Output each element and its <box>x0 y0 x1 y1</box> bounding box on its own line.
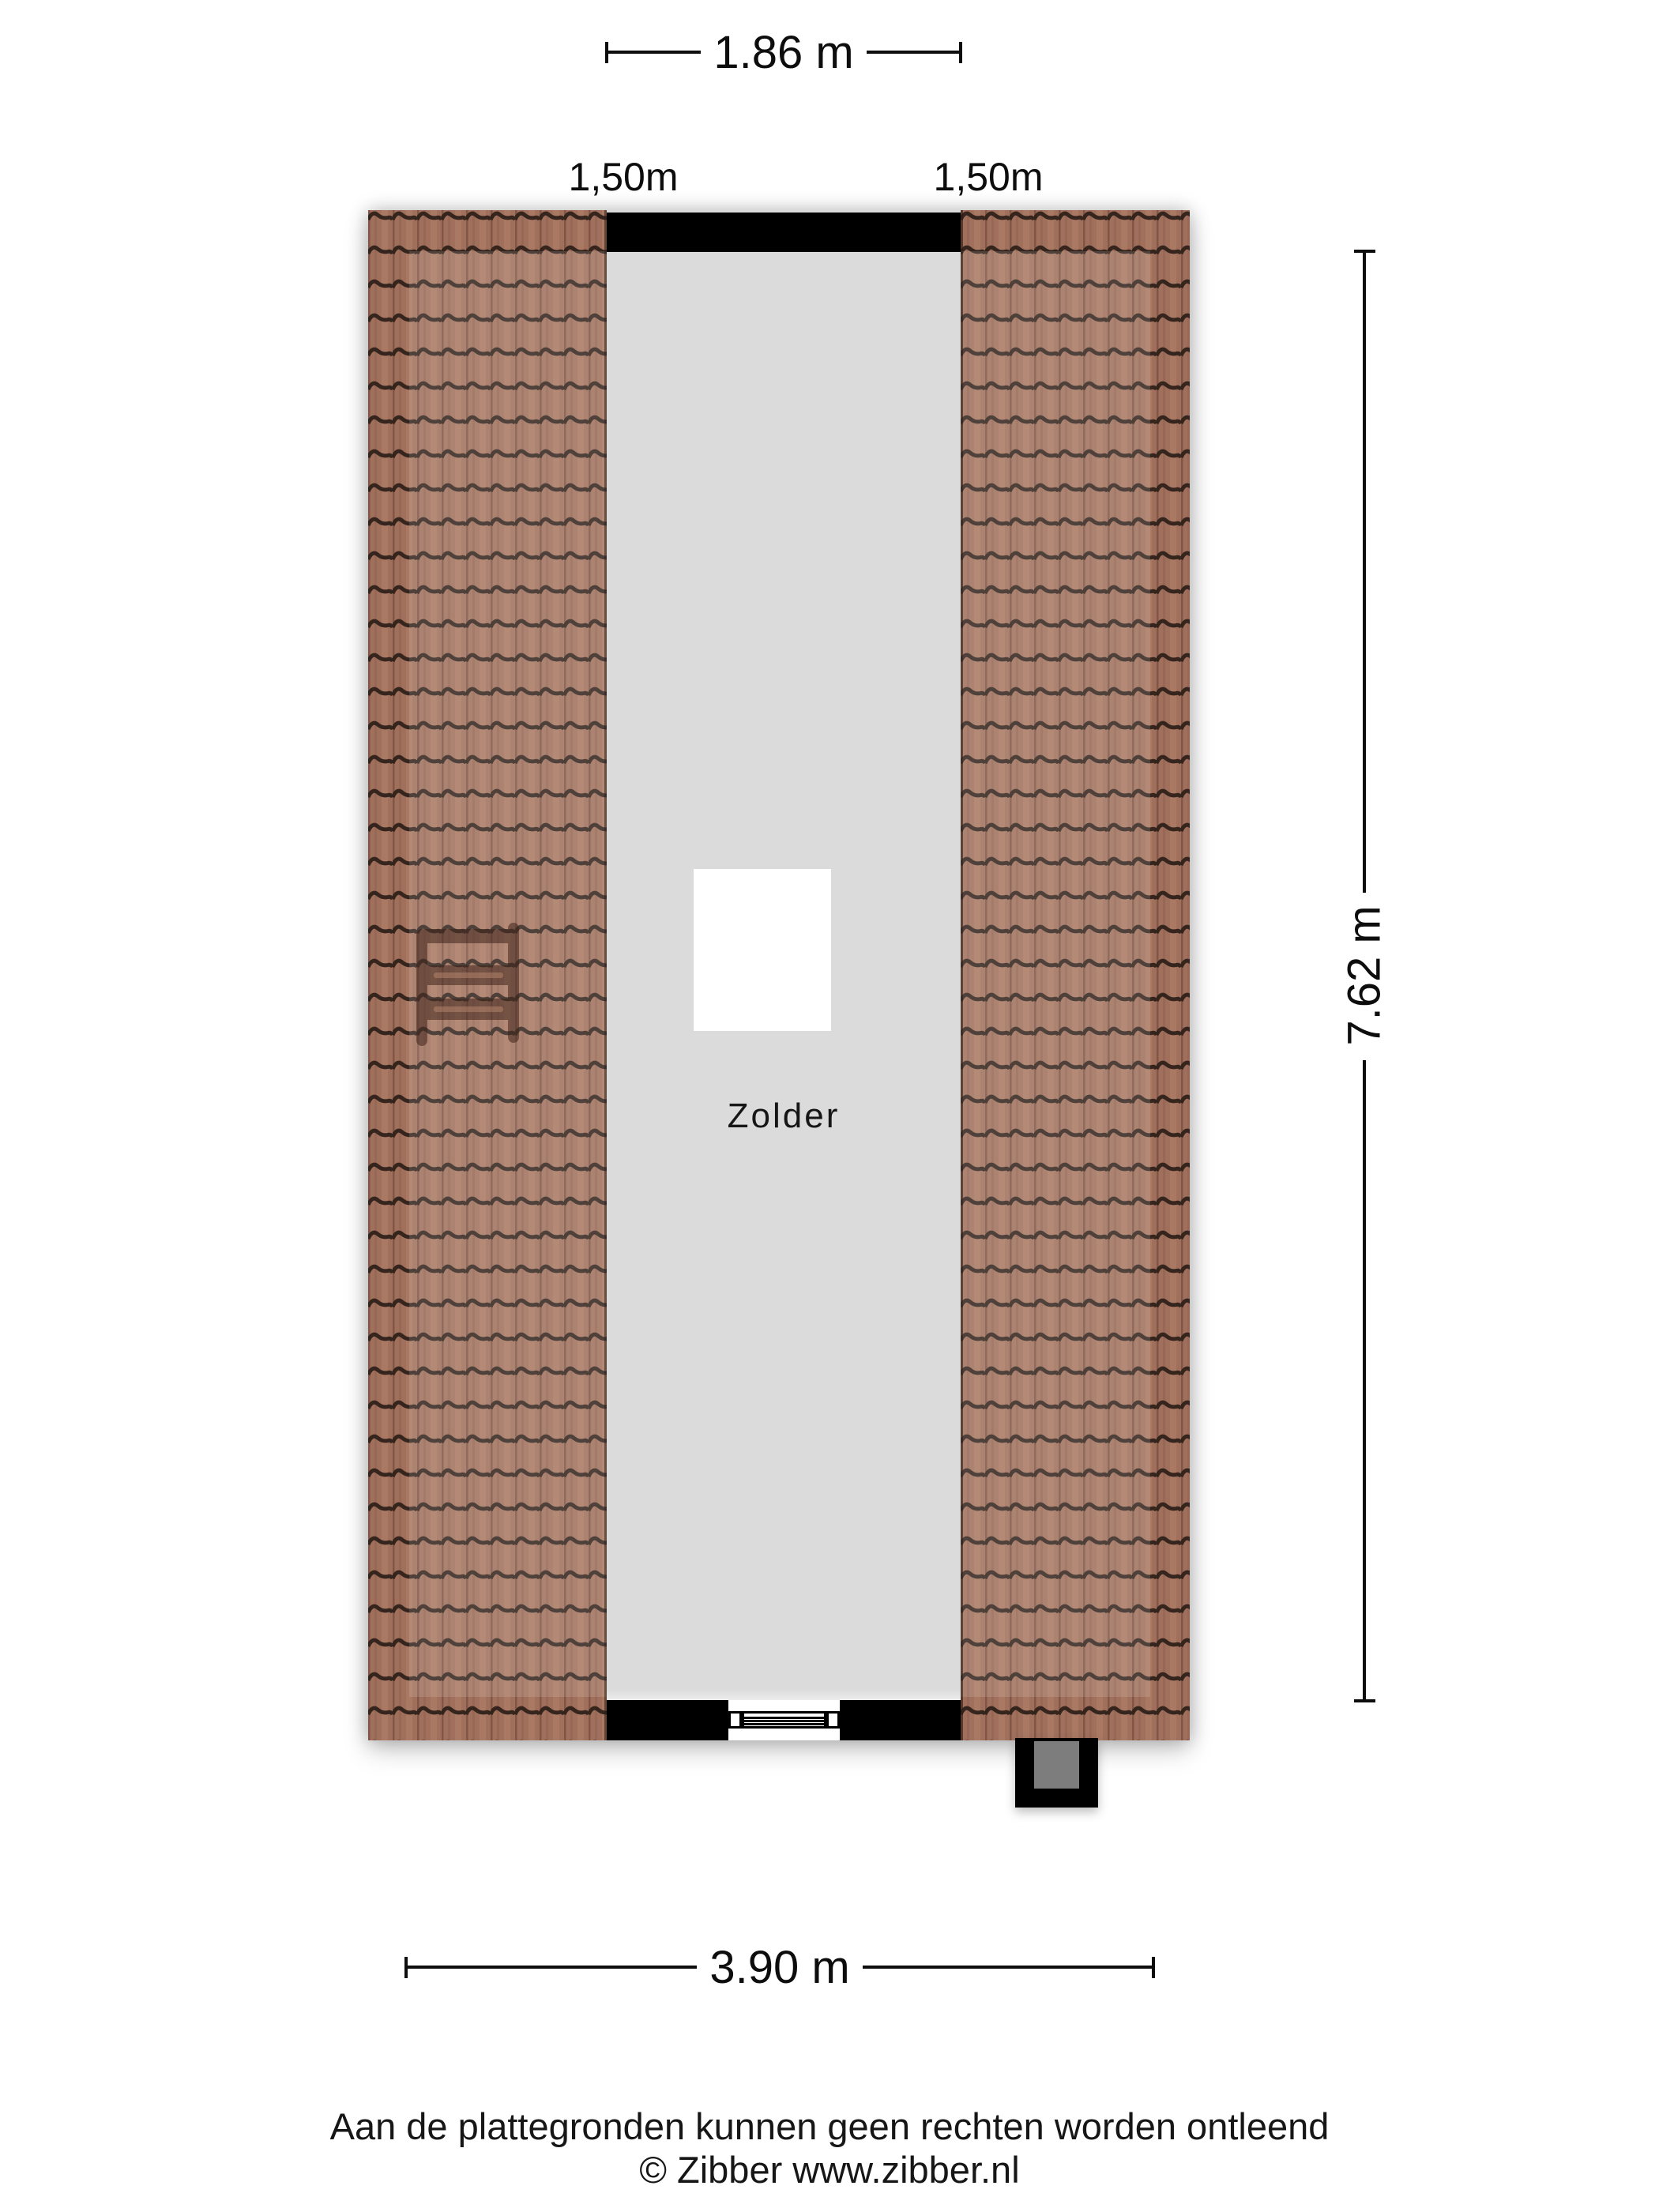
skylight <box>694 869 831 1031</box>
bottom-window <box>728 1700 840 1740</box>
room-label: Zolder <box>607 1097 961 1136</box>
glazing-line <box>744 1717 824 1719</box>
dimension-line <box>408 1966 697 1969</box>
dimension-bottom-label: 3.90 m <box>697 1941 862 1994</box>
window-frame-end <box>826 1711 840 1729</box>
dimension-line <box>608 51 701 54</box>
dimension-tick <box>959 42 962 63</box>
glazing-line <box>744 1720 824 1722</box>
dimension-line <box>1363 251 1366 893</box>
roof-width-label-left: 1,50m <box>569 153 679 201</box>
floor-plan: Zolder <box>368 210 1190 1740</box>
dimension-right-label: 7.62 m <box>1338 905 1391 1045</box>
roof-width-label-right: 1,50m <box>934 153 1044 201</box>
window-glazing <box>742 1711 826 1729</box>
footer-copyright: © Zibber www.zibber.nl <box>0 2148 1659 2192</box>
top-wall <box>607 213 961 252</box>
dimension-tick <box>1354 1699 1375 1702</box>
window-frame-end <box>728 1711 742 1729</box>
roof-inner-edge <box>961 210 963 1740</box>
glazing-line <box>744 1723 824 1725</box>
roof-left-panel <box>368 210 607 1740</box>
bottom-wall-right <box>840 1700 961 1740</box>
dimension-line <box>867 51 959 54</box>
floor-plan-page: 1.86 m 1,50m 1,50m <box>0 0 1659 2212</box>
roof-highlight <box>961 251 1150 1697</box>
dimension-top-label: 1.86 m <box>701 26 866 79</box>
footer-disclaimer: Aan de plattegronden kunnen geen rechten… <box>0 2105 1659 2149</box>
dimension-top: 1.86 m <box>605 24 962 80</box>
dimension-line <box>863 1966 1152 1969</box>
dimension-line <box>1363 1060 1366 1701</box>
chimney <box>1015 1738 1098 1808</box>
dimension-bottom: 3.90 m <box>404 1939 1155 1995</box>
dimension-tick <box>1152 1957 1155 1978</box>
bottom-wall-left <box>607 1700 728 1740</box>
chimney-flue <box>1034 1741 1079 1789</box>
roof-right-panel <box>961 210 1190 1740</box>
chair-on-roof-silhouette <box>416 923 519 1046</box>
